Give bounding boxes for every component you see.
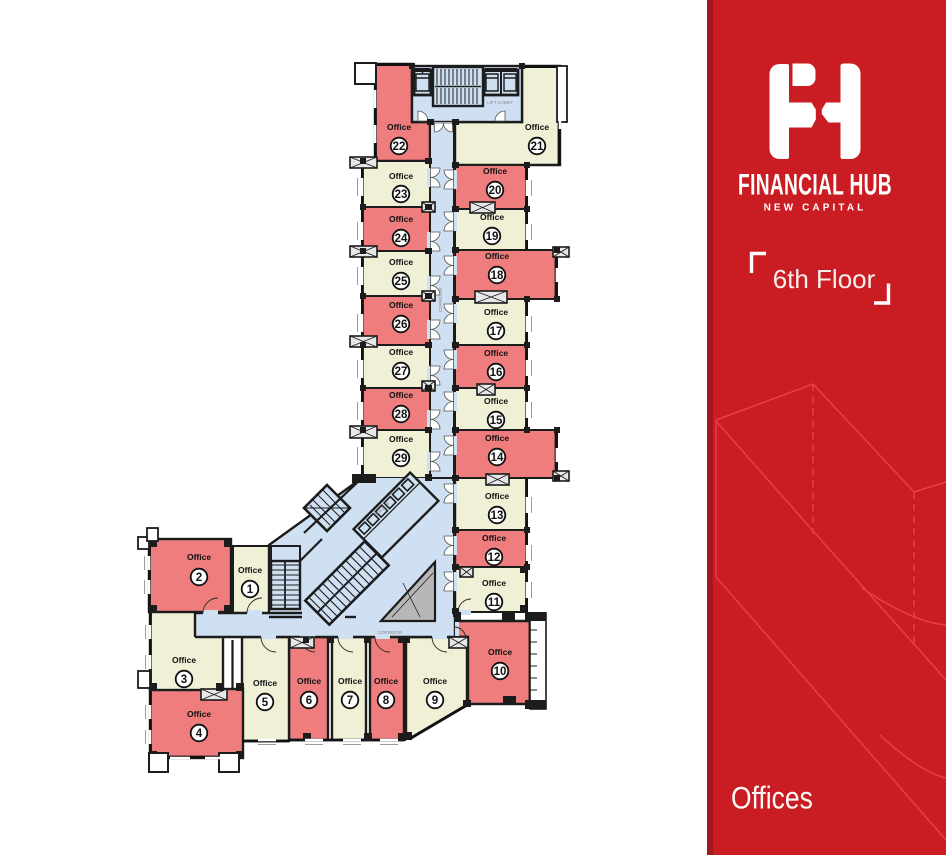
svg-text:Office: Office <box>480 212 504 222</box>
svg-text:Office: Office <box>389 300 413 310</box>
svg-text:22: 22 <box>393 141 406 153</box>
svg-text:29: 29 <box>395 453 408 465</box>
svg-text:Office: Office <box>338 676 362 686</box>
svg-text:3: 3 <box>181 674 187 686</box>
svg-text:NEW CAPITAL: NEW CAPITAL <box>764 203 867 214</box>
svg-text:Office: Office <box>482 578 506 588</box>
svg-text:Office: Office <box>485 433 509 443</box>
svg-text:Office: Office <box>484 307 508 317</box>
svg-text:28: 28 <box>395 409 408 421</box>
svg-text:6th Floor: 6th Floor <box>773 264 876 294</box>
svg-text:14: 14 <box>491 452 504 464</box>
svg-text:23: 23 <box>395 189 408 201</box>
svg-text:19: 19 <box>486 231 499 243</box>
svg-text:9: 9 <box>432 695 438 707</box>
svg-text:Office: Office <box>187 552 211 562</box>
svg-text:24: 24 <box>395 233 408 245</box>
svg-text:15: 15 <box>490 415 503 427</box>
svg-text:Office: Office <box>172 655 196 665</box>
svg-text:Office: Office <box>485 491 509 501</box>
svg-text:25: 25 <box>395 276 408 288</box>
svg-text:13: 13 <box>491 510 504 522</box>
svg-text:Office: Office <box>389 257 413 267</box>
svg-text:5: 5 <box>262 697 269 709</box>
svg-text:Office: Office <box>482 533 506 543</box>
svg-text:CORRIDOR: CORRIDOR <box>378 630 403 635</box>
svg-text:Office: Office <box>389 390 413 400</box>
svg-text:17: 17 <box>490 326 503 338</box>
svg-text:Office: Office <box>238 565 262 575</box>
svg-text:21: 21 <box>531 141 544 153</box>
svg-text:27: 27 <box>395 366 408 378</box>
svg-text:1: 1 <box>247 584 254 596</box>
svg-text:Office: Office <box>484 396 508 406</box>
svg-text:6: 6 <box>306 695 312 707</box>
svg-text:Office: Office <box>485 251 509 261</box>
svg-text:Offices: Offices <box>731 781 813 816</box>
svg-text:Office: Office <box>387 122 411 132</box>
svg-text:Office: Office <box>423 676 447 686</box>
svg-text:Office: Office <box>253 678 277 688</box>
svg-text:7: 7 <box>347 695 353 707</box>
svg-text:Office: Office <box>297 676 321 686</box>
svg-text:Office: Office <box>483 166 507 176</box>
svg-text:Office: Office <box>374 676 398 686</box>
svg-text:8: 8 <box>383 695 390 707</box>
svg-text:Office: Office <box>389 434 413 444</box>
svg-text:LIFT LOBBY: LIFT LOBBY <box>487 100 512 105</box>
svg-text:11: 11 <box>488 597 501 609</box>
svg-text:26: 26 <box>395 319 408 331</box>
svg-text:4: 4 <box>196 728 203 740</box>
svg-text:16: 16 <box>490 367 503 379</box>
svg-text:Office: Office <box>488 647 512 657</box>
svg-text:10: 10 <box>494 666 507 678</box>
svg-text:Office: Office <box>389 214 413 224</box>
svg-text:Office: Office <box>389 171 413 181</box>
svg-text:Office: Office <box>187 709 211 719</box>
svg-text:20: 20 <box>489 185 502 197</box>
svg-text:12: 12 <box>488 552 501 564</box>
svg-text:CORRIDOR: CORRIDOR <box>438 287 443 312</box>
svg-text:2: 2 <box>196 572 202 584</box>
svg-text:Office: Office <box>389 347 413 357</box>
svg-text:18: 18 <box>491 270 504 282</box>
svg-text:Office: Office <box>484 348 508 358</box>
svg-text:FINANCIAL HUB: FINANCIAL HUB <box>738 170 892 202</box>
svg-text:Office: Office <box>525 122 549 132</box>
